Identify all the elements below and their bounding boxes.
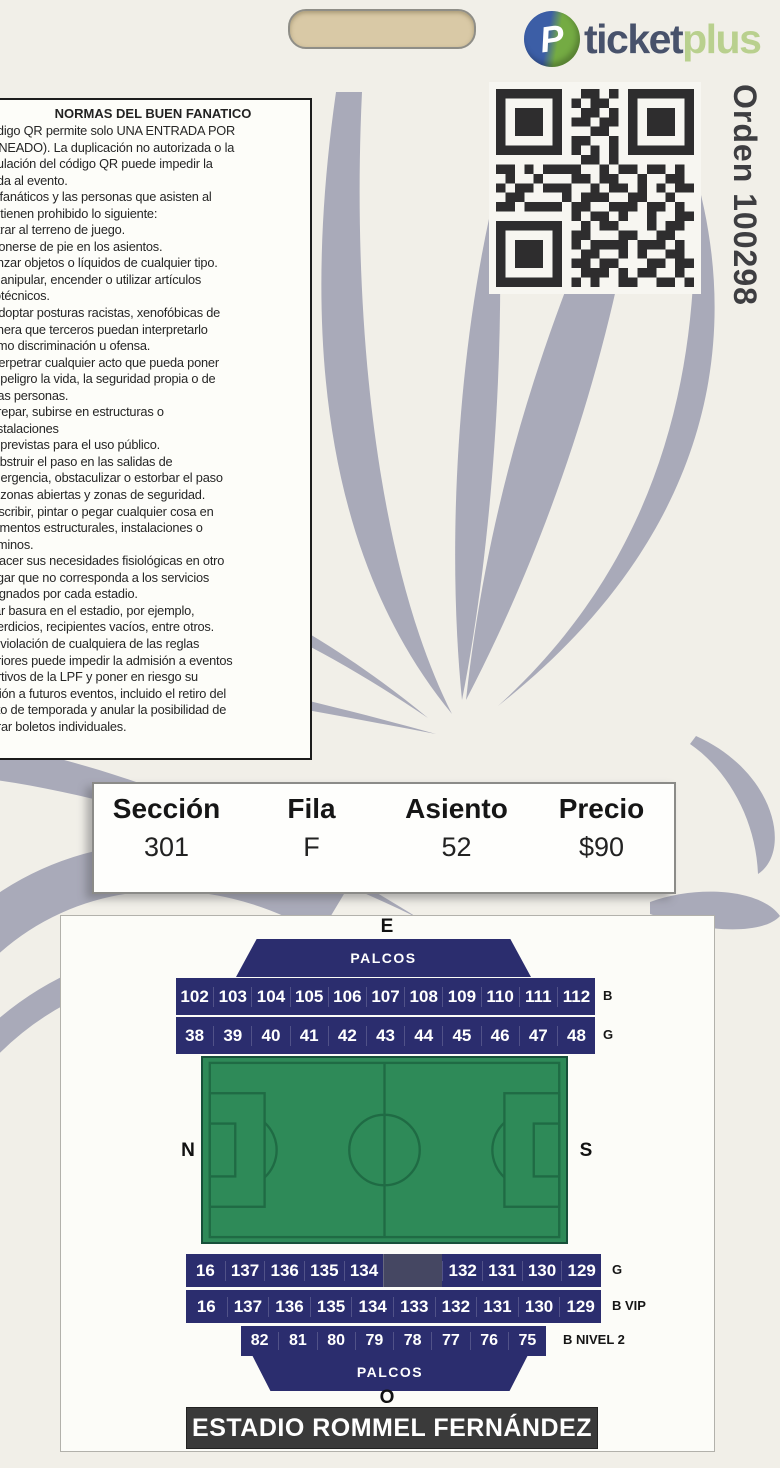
logo-text-plus: plus (682, 16, 760, 62)
seat-header: Fila (239, 793, 384, 825)
section-cell: 133 (393, 1297, 435, 1317)
logo-text-ticket: ticket (584, 16, 682, 62)
rule-line: Hacer sus necesidades fisiológicas en ot… (0, 553, 304, 570)
compass-north-label: N (173, 1140, 203, 1162)
section-cell: 102 (176, 987, 213, 1007)
row-label-upper-g: G (603, 1027, 613, 1042)
section-cell: 46 (481, 1026, 519, 1046)
section-cell: 78 (393, 1332, 431, 1350)
section-cell: 38 (176, 1026, 213, 1046)
field-markings (203, 1058, 566, 1242)
section-row-b-nivel2: 8281807978777675 (241, 1326, 546, 1356)
palcos-top-banner: PALCOS (236, 939, 531, 977)
brand-logo: P ticketplus (524, 10, 760, 68)
rule-line: omo discriminación u ofensa. (0, 338, 304, 355)
rule-line: anzar objetos o líquidos de cualquier ti… (0, 255, 304, 272)
section-cell: 132 (442, 1261, 482, 1281)
rules-panel: NORMAS DEL BUEN FANATICO ódigo QR permit… (0, 98, 312, 760)
section-cell: 81 (278, 1332, 316, 1350)
section-cell: 75 (508, 1332, 546, 1350)
rule-line: prar boletos individuales. (0, 719, 304, 736)
seat-header: Precio (529, 793, 674, 825)
section-cell: 77 (431, 1332, 469, 1350)
rule-line: Ponerse de pie en los asientos. (0, 239, 304, 256)
section-cell: 39 (213, 1026, 251, 1046)
rule-line: Manipular, encender o utilizar artículos (0, 272, 304, 289)
rule-line: a violación de cualquiera de las reglas (0, 636, 304, 653)
rule-line: o previstas para el uso público. (0, 437, 304, 454)
section-cell: 131 (482, 1261, 522, 1281)
rule-line: ortivos de la LPF y poner en riesgo su (0, 669, 304, 686)
seat-column-fila: Fila F (239, 784, 384, 892)
rule-line: signados por cada estadio. (0, 586, 304, 603)
section-row-upper-g: 3839404142434445464748 (176, 1017, 595, 1054)
rule-line: perdicios, recipientes vacíos, entre otr… (0, 619, 304, 636)
field-diagram (201, 1056, 568, 1244)
ticketplus-globe-icon: P (524, 11, 580, 67)
section-cell: 130 (518, 1297, 560, 1317)
rule-line: tras personas. (0, 388, 304, 405)
section-cell: 47 (519, 1026, 557, 1046)
section-cell: 136 (264, 1261, 304, 1281)
rule-line: n peligro la vida, la seguridad propia o… (0, 371, 304, 388)
section-cell: 137 (227, 1297, 269, 1317)
rule-line: isión a futuros eventos, incluido el ret… (0, 686, 304, 703)
seat-info-card: Sección 301 Fila F Asiento 52 Precio $90 (92, 782, 676, 894)
punch-slot (288, 9, 476, 49)
section-cell: 16 (186, 1297, 227, 1317)
rule-line: aminos. (0, 537, 304, 554)
rule-line: ugar que no corresponda a los servicios (0, 570, 304, 587)
section-cell: 105 (290, 987, 328, 1007)
section-cell: 109 (442, 987, 480, 1007)
rule-line: ntrar al terreno de juego. (0, 222, 304, 239)
row-label-b-vip: B VIP (612, 1298, 646, 1313)
section-cell: 129 (559, 1297, 601, 1317)
rule-line: ada al evento. (0, 173, 304, 190)
stadium-map-panel: E PALCOS 1021031041051061071081091101111… (60, 915, 715, 1452)
rules-title: NORMAS DEL BUEN FANATICO (2, 106, 304, 121)
section-cell: 82 (241, 1332, 278, 1350)
rule-line: ódigo QR permite solo UNA ENTRADA POR (0, 123, 304, 140)
palcos-bottom-banner: PALCOS (251, 1353, 529, 1391)
qr-code (489, 82, 701, 294)
section-row-upper-b: 102103104105106107108109110111112 (176, 978, 595, 1015)
section-cell: 48 (557, 1026, 595, 1046)
section-cell: 16 (186, 1261, 225, 1281)
section-cell: 135 (304, 1261, 344, 1281)
rule-line: mergencia, obstaculizar o estorbar el pa… (0, 470, 304, 487)
rule-line: o tienen prohibido lo siguiente: (0, 206, 304, 223)
section-row-lower-g: 16137136135134132131130129 (186, 1254, 601, 1287)
seat-column-seccion: Sección 301 (94, 784, 239, 892)
compass-west-label: O (372, 1387, 402, 1409)
section-cell: 108 (404, 987, 442, 1007)
rule-line: nstalaciones (0, 421, 304, 438)
rule-line: Trepar, subirse en estructuras o (0, 404, 304, 421)
logo-wordmark: ticketplus (584, 16, 760, 63)
section-cell: 41 (290, 1026, 328, 1046)
stadium-name-bar: ESTADIO ROMMEL FERNÁNDEZ (186, 1407, 598, 1449)
seat-value: 301 (94, 832, 239, 863)
seat-column-precio: Precio $90 (529, 784, 674, 892)
rule-line: Escribir, pintar o pegar cualquier cosa … (0, 504, 304, 521)
section-cell: 45 (442, 1026, 480, 1046)
section-cell: 129 (561, 1261, 601, 1281)
rule-line: eriores puede impedir la admisión a even… (0, 653, 304, 670)
section-cell: 44 (404, 1026, 442, 1046)
section-cell: 137 (225, 1261, 265, 1281)
seat-value: $90 (529, 832, 674, 863)
section-cell: 136 (268, 1297, 310, 1317)
compass-east-label: E (372, 916, 402, 938)
rule-line: lementos estructurales, instalaciones o (0, 520, 304, 537)
seat-header: Sección (94, 793, 239, 825)
row-label-b-nivel2: B NIVEL 2 (563, 1332, 625, 1347)
rule-line: rotécnicos. (0, 288, 304, 305)
seat-header: Asiento (384, 793, 529, 825)
rule-line: s fanáticos y las personas que asisten a… (0, 189, 304, 206)
palcos-top-label: PALCOS (350, 950, 416, 966)
rule-line: ANEADO). La duplicación no autorizada o … (0, 140, 304, 157)
seat-column-asiento: Asiento 52 (384, 784, 529, 892)
rule-line: Obstruir el paso en las salidas de (0, 454, 304, 471)
section-cell: 107 (366, 987, 404, 1007)
section-cell: 79 (355, 1332, 393, 1350)
section-cell: 132 (435, 1297, 477, 1317)
rule-line: Adoptar posturas racistas, xenofóbicas d… (0, 305, 304, 322)
section-cell: 131 (476, 1297, 518, 1317)
section-cell: 110 (481, 987, 519, 1007)
section-cell: 76 (470, 1332, 508, 1350)
rule-line: eto de temporada y anular la posibilidad… (0, 702, 304, 719)
section-cell: 43 (366, 1026, 404, 1046)
rule-line: pulación del código QR puede impedir la (0, 156, 304, 173)
section-cell: 40 (251, 1026, 289, 1046)
rule-line: rar basura en el estadio, por ejemplo, (0, 603, 304, 620)
section-cell: 130 (522, 1261, 562, 1281)
compass-south-label: S (571, 1140, 601, 1162)
rule-line: Perpetrar cualquier acto que pueda poner (0, 355, 304, 372)
section-cell: 80 (317, 1332, 355, 1350)
section-cell: 103 (213, 987, 251, 1007)
seat-value: 52 (384, 832, 529, 863)
section-cell: 112 (557, 987, 595, 1007)
logo-icon-letter: P (520, 7, 583, 70)
order-number: Orden 100298 (726, 84, 763, 306)
section-row-b-vip: 16137136135134133132131130129 (186, 1290, 601, 1323)
row-label-upper-b: B (603, 988, 612, 1003)
rule-line: anera que terceros puedan interpretarlo (0, 322, 304, 339)
section-cell: 111 (519, 987, 557, 1007)
section-gap (383, 1254, 442, 1287)
section-cell: 134 (351, 1297, 393, 1317)
ticket: P ticketplus Orden 100298 NORMAS DEL BUE… (0, 0, 780, 1468)
section-cell: 42 (328, 1026, 366, 1046)
section-cell: 104 (251, 987, 289, 1007)
row-label-lower-g: G (612, 1262, 622, 1277)
rules-text: ódigo QR permite solo UNA ENTRADA PORANE… (0, 123, 304, 735)
section-cell: 135 (310, 1297, 352, 1317)
seat-value: F (239, 832, 384, 863)
section-cell: 134 (344, 1261, 384, 1281)
palcos-bottom-label: PALCOS (357, 1364, 423, 1380)
section-cell: 106 (328, 987, 366, 1007)
rule-line: n zonas abiertas y zonas de seguridad. (0, 487, 304, 504)
